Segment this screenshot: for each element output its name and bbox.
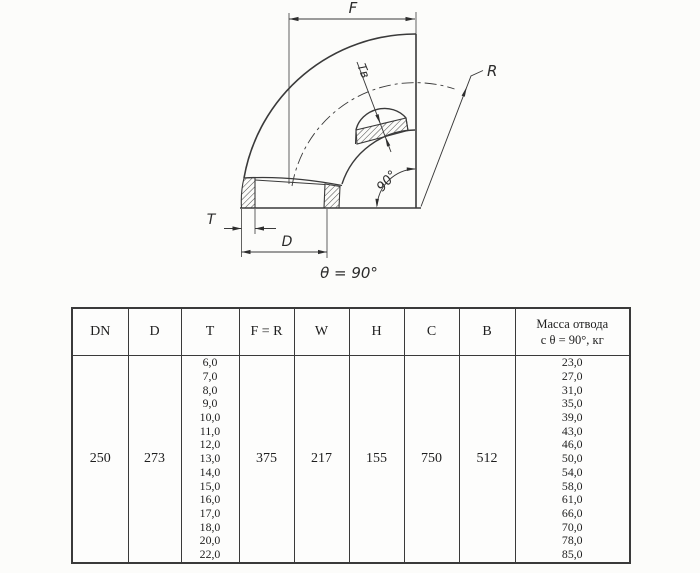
elbow-drawing: F R Tв 90° T D θ = 90°	[0, 0, 700, 300]
spec-table: DN D T F = R W H C B Масса отвода с θ = …	[71, 307, 631, 564]
radius-leader-line	[421, 71, 483, 207]
value-b: 512	[459, 356, 515, 564]
dim-f-label: F	[349, 0, 358, 17]
radius-label: R	[487, 62, 497, 80]
outer-arc	[244, 34, 416, 178]
header-row: DN D T F = R W H C B Масса отвода с θ = …	[72, 308, 630, 356]
wall-section-left	[241, 178, 255, 209]
theta-note: θ = 90°	[320, 264, 378, 282]
wall-section-right	[324, 184, 340, 208]
header-d: D	[128, 308, 181, 356]
tv-wall-thickness-label: Tв	[354, 62, 372, 81]
header-mass: Масса отвода с θ = 90°, кг	[515, 308, 630, 356]
elbow-outline	[224, 12, 483, 258]
value-t-list: 6,0 7,0 8,0 9,0 10,0 11,0 12,0 13,0 14,0…	[181, 356, 239, 564]
header-b: B	[459, 308, 515, 356]
dim-d-label: D	[282, 234, 293, 250]
section-wall-band	[356, 118, 408, 144]
header-t: T	[181, 308, 239, 356]
value-w: 217	[294, 356, 349, 564]
header-dn: DN	[72, 308, 128, 356]
value-h: 155	[349, 356, 404, 564]
value-mass-list: 23,0 27,0 31,0 35,0 39,0 43,0 46,0 50,0 …	[515, 356, 630, 564]
header-fr: F = R	[239, 308, 294, 356]
value-fr: 375	[239, 356, 294, 564]
angle-90-label: 90°	[374, 168, 401, 195]
header-w: W	[294, 308, 349, 356]
dimension-arrowheads	[233, 17, 467, 254]
page: F R Tв 90° T D θ = 90° DN D T F = R W H …	[0, 0, 700, 573]
value-dn: 250	[72, 356, 128, 564]
header-h: H	[349, 308, 404, 356]
value-d: 273	[128, 356, 181, 564]
header-c: C	[404, 308, 459, 356]
data-row: 250 273 6,0 7,0 8,0 9,0 10,0 11,0 12,0 1…	[72, 356, 630, 564]
value-c: 750	[404, 356, 459, 564]
dim-t-label: T	[207, 212, 217, 228]
